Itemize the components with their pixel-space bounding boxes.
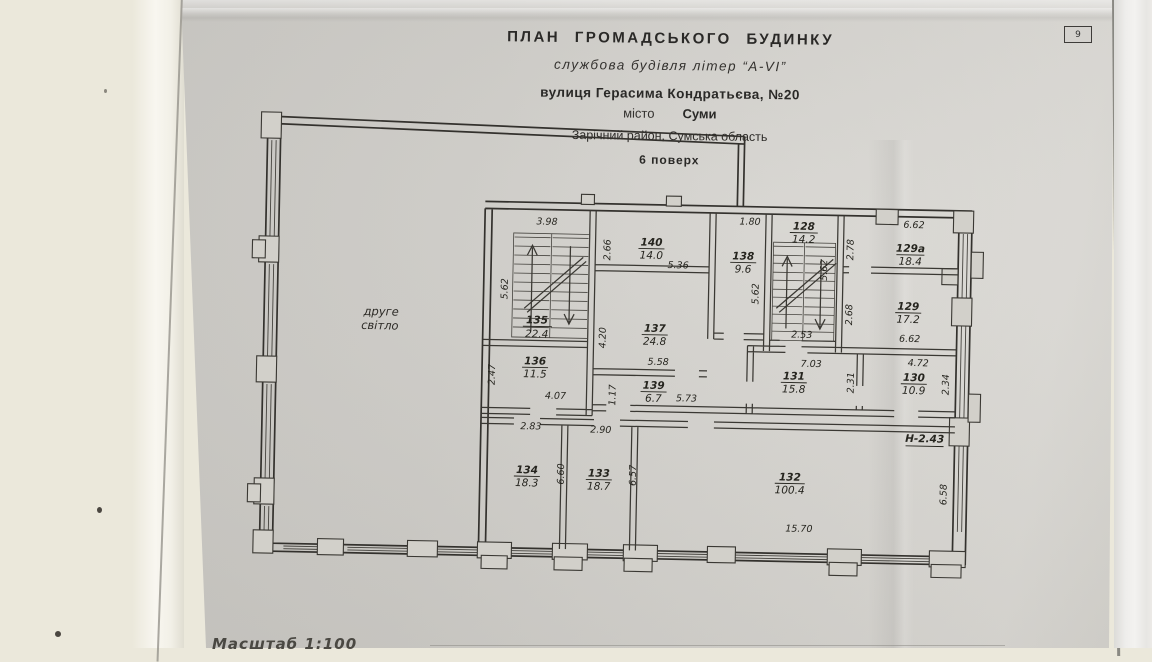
room-number: 128 — [793, 221, 815, 233]
dim-label: 2.66 — [602, 239, 613, 260]
dim-label: 7.03 — [800, 359, 821, 370]
room-number: 134 — [516, 464, 538, 476]
room-number: 137 — [644, 323, 667, 335]
height-note: Н-2.43 — [905, 433, 944, 446]
dim-label: 2.90 — [590, 425, 611, 436]
hall-label-line1: друге — [362, 304, 398, 319]
dimension-labels: 3.98 5.62 2.66 5.36 1.80 5.62 5.62 2.53 … — [484, 211, 955, 537]
staircase-128 — [772, 242, 837, 341]
room-area: 11.5 — [523, 368, 547, 380]
room-number: 135 — [526, 314, 548, 326]
interior-walls — [478, 208, 959, 556]
room-number: 133 — [588, 467, 610, 479]
dim-label: 6.62 — [903, 220, 924, 231]
dim-label: 15.70 — [785, 523, 812, 535]
room-number: 140 — [640, 237, 662, 249]
dim-label: 6.57 — [628, 465, 639, 486]
outer-walls — [259, 116, 974, 565]
dim-label: 6.62 — [899, 334, 920, 345]
room-number: 129а — [896, 243, 925, 256]
room-number: 136 — [524, 355, 546, 367]
wall-piers — [246, 112, 986, 579]
dim-label: 2.78 — [845, 239, 856, 260]
hall-label-line2: світло — [361, 318, 399, 333]
room-number: 138 — [732, 250, 754, 262]
room-area: 10.9 — [902, 385, 926, 397]
dim-label: 5.73 — [676, 393, 697, 404]
room-number: 129 — [897, 301, 919, 313]
room-number: 139 — [643, 380, 665, 392]
room-area: 15.8 — [782, 383, 806, 395]
dim-label: 1.80 — [739, 216, 760, 227]
room-area: 100.4 — [774, 484, 804, 497]
room-number: 130 — [903, 372, 925, 384]
room-area: 17.2 — [896, 314, 920, 326]
dim-label: 2.47 — [487, 364, 498, 385]
room-area: 6.7 — [645, 393, 662, 405]
stamp-table-edge — [430, 645, 1005, 646]
dim-label: 5.58 — [647, 357, 668, 368]
staircase-135 — [512, 233, 590, 339]
dim-label: 2.68 — [844, 304, 855, 325]
dim-label: 3.98 — [536, 216, 557, 227]
room-area: 9.6 — [735, 263, 752, 275]
dim-label: 4.20 — [597, 327, 608, 348]
dim-label: 4.72 — [908, 358, 929, 369]
dim-label: 2.53 — [791, 330, 812, 341]
dim-label: 6.60 — [556, 463, 567, 484]
room-area: 14.0 — [639, 249, 663, 261]
room-area: 14.2 — [792, 234, 816, 246]
dim-label: 1.17 — [607, 384, 618, 405]
dim-label: 2.34 — [941, 374, 952, 395]
dim-label: 2.83 — [520, 421, 541, 432]
dim-label: 4.07 — [545, 391, 566, 402]
room-number: 132 — [779, 471, 801, 483]
room-area: 22.4 — [525, 328, 549, 340]
room-area: 24.8 — [643, 336, 667, 348]
room-number: 131 — [783, 370, 805, 382]
room-area: 18.3 — [515, 477, 539, 489]
room-area: 18.7 — [587, 480, 611, 492]
dim-label: 5.36 — [667, 260, 688, 271]
room-area: 18.4 — [898, 256, 922, 268]
floor-plan-drawing: 135 22.4 140 14.0 138 9.6 128 14.2 129а … — [0, 0, 1152, 648]
dim-label: 2.31 — [846, 372, 857, 393]
scale-note: Масштаб 1:100 — [212, 635, 357, 653]
dim-label: 5.62 — [499, 278, 510, 299]
dim-label: 5.62 — [750, 283, 761, 304]
room-labels: 135 22.4 140 14.0 138 9.6 128 14.2 129а … — [514, 215, 948, 500]
dim-label: 5.62 — [819, 260, 830, 281]
dim-label: 6.58 — [938, 484, 949, 505]
